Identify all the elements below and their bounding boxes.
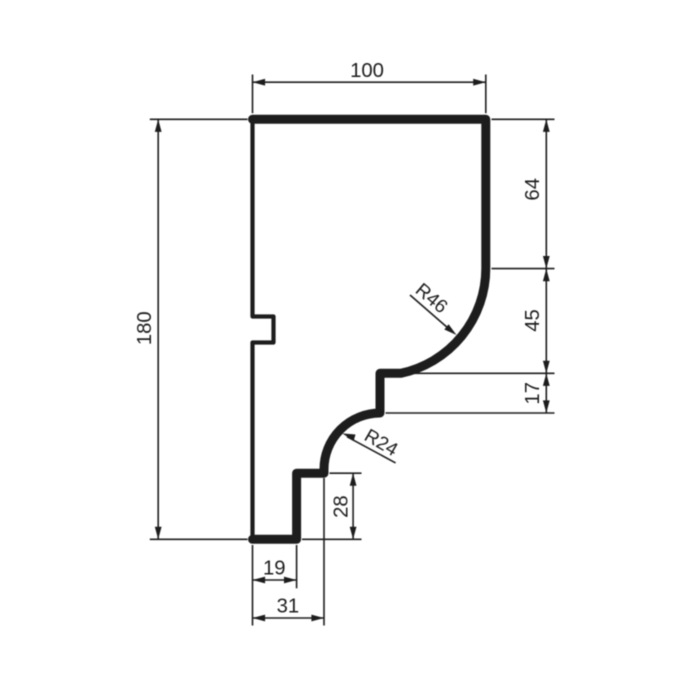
svg-text:31: 31 — [277, 595, 300, 617]
svg-text:64: 64 — [522, 178, 544, 201]
svg-text:17: 17 — [522, 382, 544, 405]
svg-text:28: 28 — [331, 495, 353, 518]
svg-text:180: 180 — [134, 311, 156, 345]
svg-text:19: 19 — [263, 558, 286, 580]
svg-text:45: 45 — [522, 309, 544, 332]
svg-text:100: 100 — [350, 60, 384, 82]
